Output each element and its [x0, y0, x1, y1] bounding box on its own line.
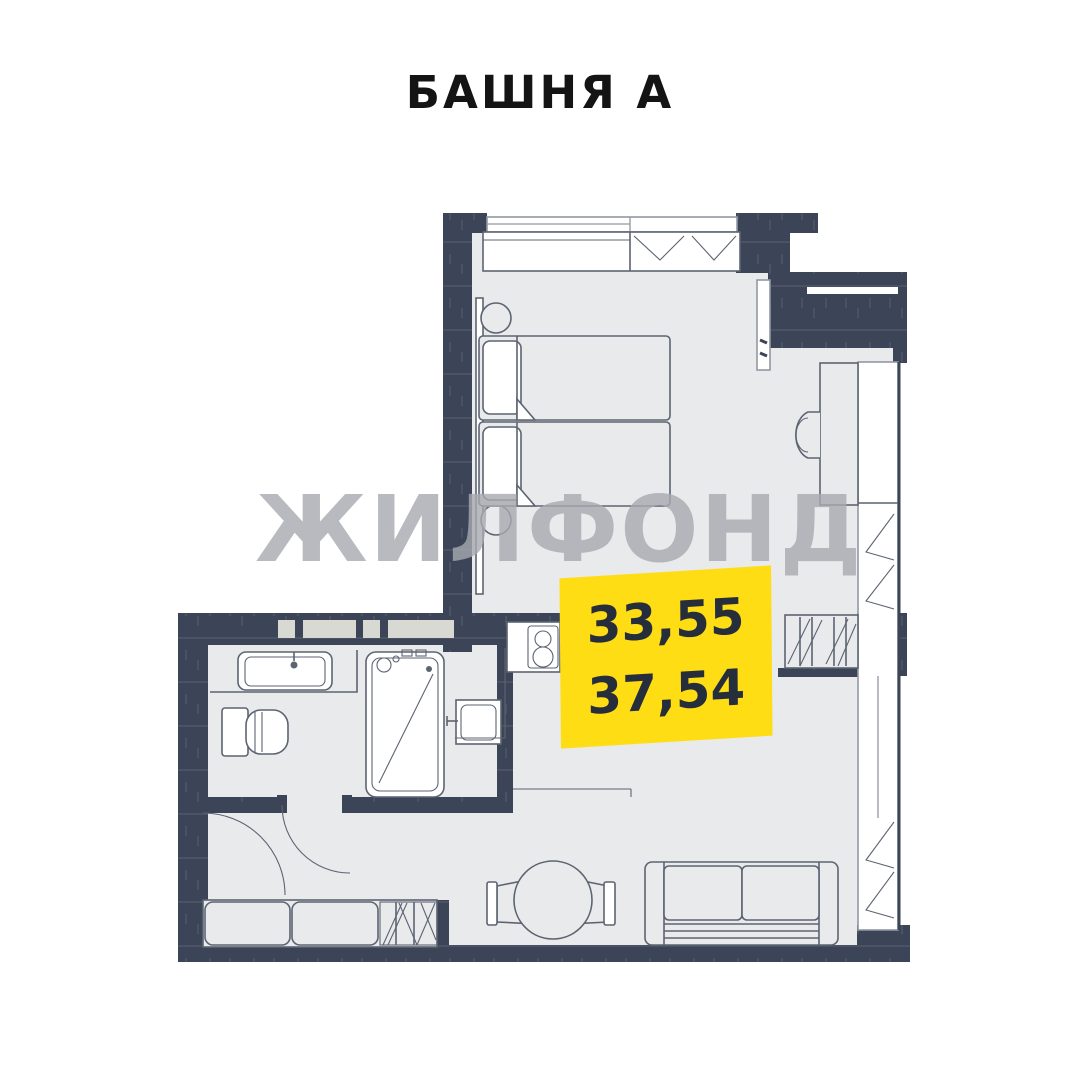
nightstand: [481, 303, 511, 333]
wall-slit: [807, 287, 898, 294]
area-total-value: 37,54: [587, 652, 745, 733]
dresser-hatch-right: [785, 615, 858, 668]
dining-table: [514, 861, 592, 939]
desk-chair: [796, 412, 820, 458]
floor-plan-page: БАШНЯ А: [0, 0, 1080, 1080]
toilet: [222, 708, 288, 756]
bed-1: [479, 336, 670, 420]
top-window: [487, 217, 737, 232]
hob-counter: [507, 622, 560, 672]
area-living-value: 33,55: [586, 581, 744, 662]
hallway-closet: [203, 900, 437, 947]
area-badge: 33,55 37,54: [559, 565, 772, 748]
bathtub: [366, 650, 444, 797]
wardrobe-top: [483, 232, 740, 271]
balcony-door-leaf: [757, 280, 770, 370]
sink: [238, 652, 332, 690]
sofa: [645, 862, 838, 945]
wall-niches: [278, 620, 454, 638]
